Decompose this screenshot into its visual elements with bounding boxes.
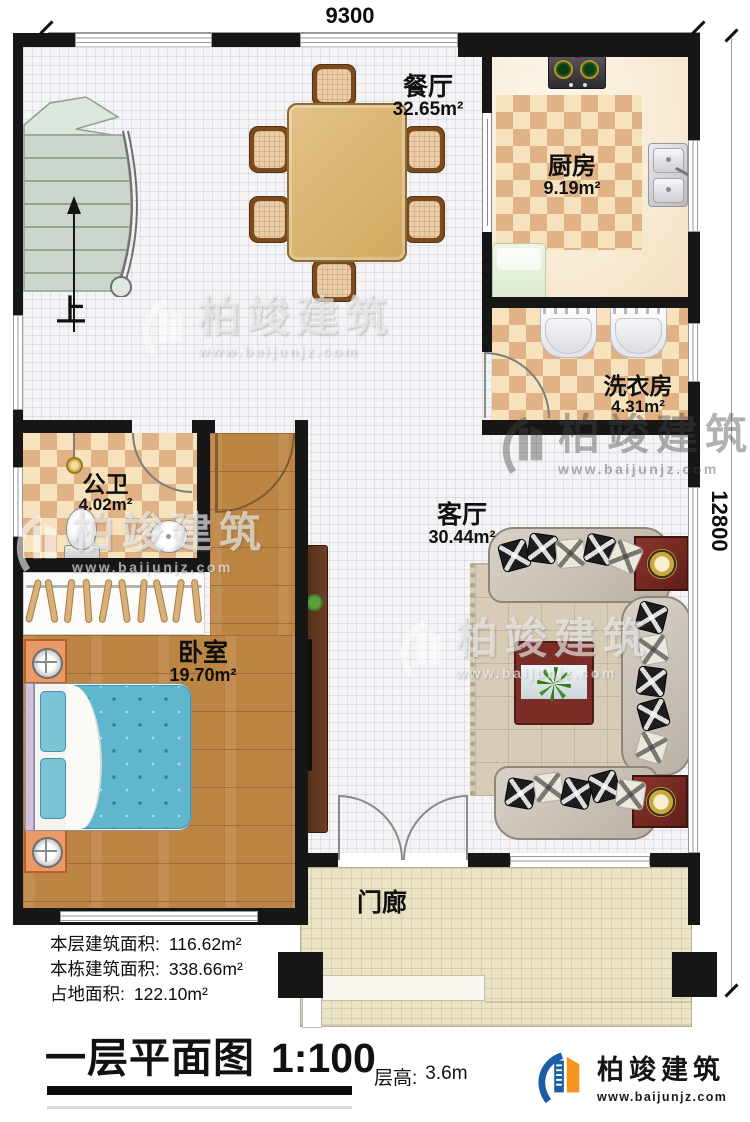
wall-segment <box>482 308 492 352</box>
page-title: 一层平面图 <box>45 1024 255 1084</box>
side-table <box>634 536 689 591</box>
table-lamp-icon <box>32 837 63 868</box>
room-name: 餐厅 <box>378 74 478 100</box>
window <box>688 140 700 232</box>
burner-icon <box>580 60 599 79</box>
wall-segment <box>482 297 688 308</box>
hanger-icon <box>83 579 93 623</box>
room-label-bathroom: 公卫 4.02m² <box>58 472 153 514</box>
window <box>13 467 23 537</box>
porch-step-line <box>485 1001 692 1003</box>
fridge-door <box>497 248 541 270</box>
room-name: 门廊 <box>343 890 421 916</box>
dining-chair <box>312 64 356 107</box>
porch-pillar <box>672 952 717 997</box>
dining-chair <box>404 126 445 173</box>
sink-drain <box>666 157 671 162</box>
kitchen-sink <box>648 143 688 207</box>
stat-value: 338.66m² <box>169 957 243 982</box>
dining-chair <box>249 126 290 173</box>
dining-chair <box>249 196 290 243</box>
dimension-width: 9300 <box>300 3 400 29</box>
dining-table <box>287 103 407 262</box>
room-label-bedroom: 卧室 19.70m² <box>153 640 253 685</box>
brand-mark-icon <box>532 1048 588 1104</box>
wall-segment <box>468 853 510 867</box>
washing-machine <box>540 303 597 358</box>
sink-drain <box>166 534 171 539</box>
wall-segment <box>13 420 132 433</box>
room-label-kitchen: 厨房 9.19m² <box>512 154 632 198</box>
wall-segment <box>13 410 23 467</box>
hanger-row <box>30 579 200 629</box>
sliding-door <box>482 113 492 232</box>
bed-headboard <box>25 683 34 831</box>
room-label-living: 客厅 30.44m² <box>407 502 517 547</box>
room-label-porch: 门廊 <box>343 890 421 916</box>
table-lamp-icon <box>646 787 676 817</box>
coffee-table <box>514 641 594 725</box>
room-area: 30.44m² <box>407 528 517 547</box>
fridge <box>492 243 546 300</box>
bed-pillow <box>40 691 66 752</box>
floor-height-label: 层高: <box>374 1063 417 1090</box>
bathroom-sink <box>150 520 188 553</box>
stat-row: 占地面积: 122.10m² <box>50 982 243 1007</box>
wall-segment <box>482 420 700 435</box>
window <box>300 33 458 47</box>
stat-label: 本栋建筑面积: <box>50 957 160 982</box>
hanger-icon <box>172 579 185 624</box>
room-name: 客厅 <box>407 502 517 528</box>
room-label-laundry: 洗衣房 4.31m² <box>578 374 698 416</box>
sofa-pillow <box>555 538 586 569</box>
porch-step <box>322 975 485 1001</box>
sofa-pillow <box>635 665 668 698</box>
wall-segment <box>482 57 492 113</box>
sliding-door-track <box>487 119 488 226</box>
dining-chair <box>312 259 356 302</box>
stair-direction-label: 上 <box>56 286 96 330</box>
table-lamp-icon <box>647 549 677 579</box>
stat-value: 116.62m² <box>169 932 242 957</box>
stat-row: 本层建筑面积: 116.62m² <box>50 932 243 957</box>
room-name: 卧室 <box>153 640 253 666</box>
hanger-icon <box>99 579 114 624</box>
stove <box>548 53 606 89</box>
room-area: 9.19m² <box>512 179 632 198</box>
wall-segment <box>458 33 700 57</box>
room-label-dining: 餐厅 32.65m² <box>378 74 478 120</box>
window <box>13 315 23 410</box>
title-underline <box>47 1086 352 1095</box>
dining-chair <box>404 196 445 243</box>
drawing-scale: 1:100 <box>271 1035 376 1082</box>
stair-arrow-icon <box>67 196 81 214</box>
sofa-pillow <box>526 532 559 565</box>
window <box>510 856 650 865</box>
brand-logo: 柏竣建筑 www.baijunjz.com <box>532 1048 727 1104</box>
sofa-pillow <box>637 633 671 667</box>
stat-row: 本栋建筑面积: 338.66m² <box>50 957 243 982</box>
brand-name: 柏竣建筑 <box>597 1048 727 1087</box>
wall-segment <box>688 33 700 140</box>
stat-value: 122.10m² <box>134 982 208 1007</box>
lamp-detail <box>34 850 57 852</box>
lamp-cord <box>73 433 75 459</box>
wall-segment <box>212 33 300 47</box>
title-underline-light <box>47 1106 352 1109</box>
wall-segment <box>295 420 308 925</box>
plant-icon <box>537 667 571 701</box>
nightstand <box>24 828 67 873</box>
toilet-bowl <box>66 508 97 550</box>
room-name: 厨房 <box>512 154 632 179</box>
room-name: 洗衣房 <box>578 374 698 398</box>
room-name: 公卫 <box>58 472 153 496</box>
stove-knob <box>569 83 573 87</box>
nightstand <box>24 639 67 684</box>
stat-label: 占地面积: <box>50 982 125 1007</box>
floor-plan-page: 上 <box>0 0 750 1122</box>
burner-icon <box>554 60 573 79</box>
window <box>60 911 258 922</box>
table-lamp-icon <box>32 648 63 679</box>
wall-segment <box>300 853 338 867</box>
washing-machine <box>610 303 667 358</box>
lamp-detail <box>34 661 57 663</box>
wall-segment <box>13 537 23 925</box>
room-area: 32.65m² <box>378 100 478 120</box>
wall-segment <box>197 420 210 572</box>
porch-pillar <box>278 952 323 998</box>
staircase <box>20 95 144 297</box>
floor-height-value: 3.6m <box>425 1063 467 1090</box>
hanger-icon <box>44 579 59 624</box>
drawing-title: 一层平面图 1:100 <box>45 1024 376 1084</box>
hanger-icon <box>152 579 168 623</box>
wall-segment <box>650 853 700 867</box>
hanger-icon <box>64 579 76 623</box>
window <box>75 33 212 47</box>
brand-url: www.baijunjz.com <box>597 1090 727 1104</box>
wardrobe <box>23 572 205 635</box>
dimension-height: 12800 <box>706 466 732 576</box>
hanger-icon <box>118 579 131 624</box>
sink-drain <box>666 187 671 192</box>
stove-knob <box>583 83 587 87</box>
stat-label: 本层建筑面积: <box>50 932 160 957</box>
bed-pillow <box>40 758 66 819</box>
hanger-icon <box>137 579 148 623</box>
wall-segment <box>13 40 23 315</box>
floor-height: 层高: 3.6m <box>374 1063 468 1090</box>
room-area: 19.70m² <box>153 666 253 685</box>
room-area: 4.31m² <box>578 398 698 416</box>
sofa-pillow <box>614 778 647 811</box>
wall-segment <box>13 558 210 572</box>
plant-icon <box>306 594 323 611</box>
room-area: 4.02m² <box>58 496 153 514</box>
window <box>688 487 700 853</box>
wall-segment <box>688 232 700 323</box>
area-stats: 本层建筑面积: 116.62m² 本栋建筑面积: 338.66m² 占地面积: … <box>50 932 243 1007</box>
